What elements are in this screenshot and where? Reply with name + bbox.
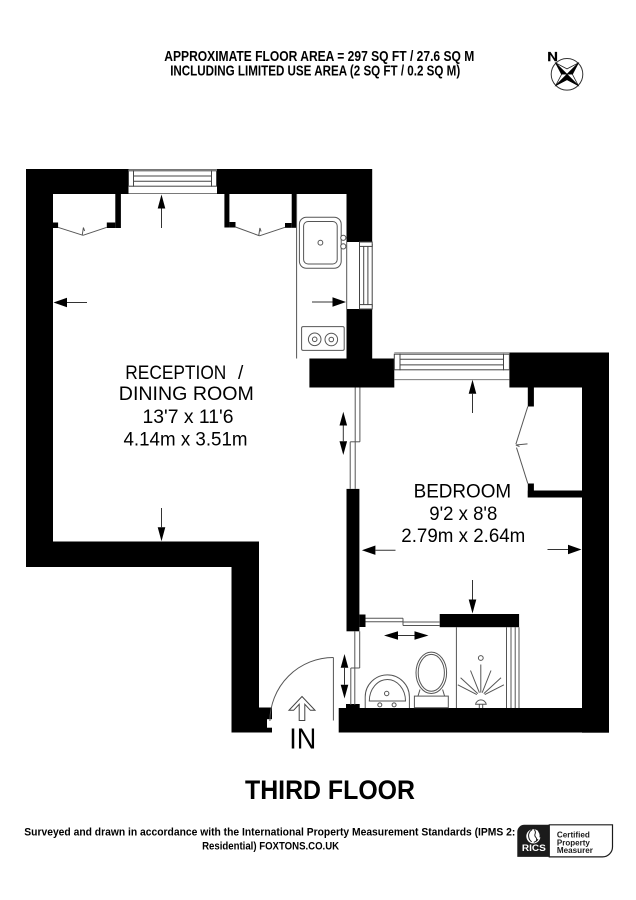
svg-text:Measurer: Measurer <box>557 846 593 855</box>
svg-text:DINING ROOM: DINING ROOM <box>119 384 254 405</box>
svg-text:/: / <box>238 363 244 384</box>
svg-text:Residential) FOXTONS.CO.UK: Residential) FOXTONS.CO.UK <box>202 841 339 853</box>
svg-text:9'2 x 8'8: 9'2 x 8'8 <box>429 504 497 525</box>
svg-text:THIRD FLOOR: THIRD FLOOR <box>245 775 415 805</box>
svg-text:RICS: RICS <box>522 843 546 853</box>
svg-text:INCLUDING LIMITED USE AREA (2: INCLUDING LIMITED USE AREA (2 SQ FT / 0.… <box>170 62 460 79</box>
svg-text:Surveyed and drawn in accordan: Surveyed and drawn in accordance with th… <box>24 826 515 838</box>
svg-text:IN: IN <box>289 723 316 755</box>
svg-text:BEDROOM: BEDROOM <box>414 482 512 503</box>
svg-text:13'7 x 11'6: 13'7 x 11'6 <box>143 407 234 428</box>
svg-text:4.14m x 3.51m: 4.14m x 3.51m <box>124 430 248 451</box>
svg-text:2.79m x 2.64m: 2.79m x 2.64m <box>401 526 525 547</box>
svg-text:RECEPTION: RECEPTION <box>125 363 226 384</box>
